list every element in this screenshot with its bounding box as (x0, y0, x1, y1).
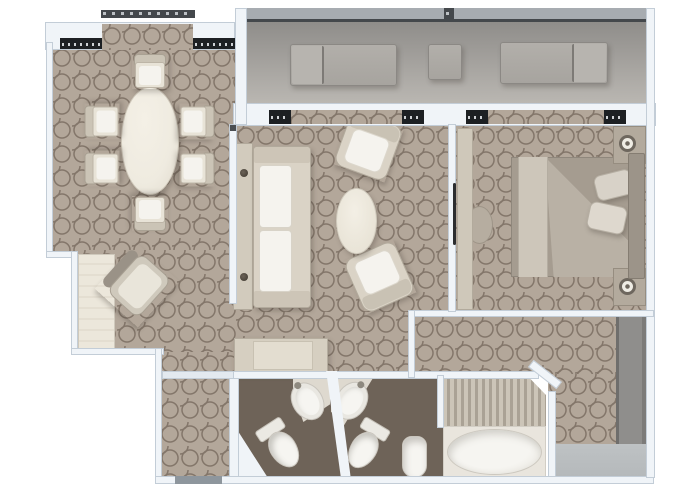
nook-bottom-wall (71, 348, 164, 355)
closet-floor-top (415, 317, 618, 374)
dining-living-divider-wall (229, 124, 237, 304)
chair-cushion (184, 158, 203, 180)
chair-cushion (184, 111, 203, 133)
chair-cushion (139, 66, 161, 85)
console-knob (240, 273, 248, 281)
sofa-cushion (259, 165, 292, 228)
wardrobe (616, 314, 646, 444)
bay-window-left (60, 38, 102, 49)
table-lamp (619, 278, 636, 295)
sun-lounger-right (500, 42, 608, 84)
bathtub (447, 429, 542, 475)
bed-headboard (628, 153, 645, 279)
dining-left-wall (46, 42, 53, 258)
hall-door-threshold (162, 371, 234, 379)
console-knob (240, 169, 248, 177)
bottom-outer-wall (155, 476, 654, 484)
balcony-side-table (428, 44, 462, 80)
dining-chair-bottom (132, 196, 168, 231)
dining-table (121, 87, 179, 195)
bay-balcony-partition-wall (235, 8, 247, 125)
hall-left-wall (155, 348, 162, 480)
credenza (234, 338, 328, 373)
bedroom-door-handle (453, 183, 456, 245)
chair-cushion (139, 200, 161, 219)
bidet (402, 436, 427, 478)
floor-plan (0, 0, 680, 486)
bay-carpet-overlay (102, 24, 193, 50)
coffee-table (336, 188, 377, 254)
bedroom-dresser (457, 128, 473, 310)
bed-runner (518, 157, 548, 277)
door-track-window (269, 110, 291, 124)
bathroom-top-wall (229, 371, 539, 379)
dining-chair-top (132, 54, 168, 89)
dining-chair-left-1 (85, 104, 120, 140)
sun-lounger-left (290, 44, 397, 86)
bedroom-bottom-wall (408, 310, 654, 317)
sofa (253, 146, 311, 308)
table-lamp (619, 135, 636, 152)
closet-left-wall (408, 310, 415, 378)
door-track-window (466, 110, 488, 124)
lounger-pillow (572, 44, 606, 82)
sofa-cushion (259, 230, 292, 292)
chair-cushion (97, 158, 116, 180)
tubroom-right-wall (548, 391, 556, 480)
railing-divider-post (444, 8, 454, 22)
dining-chair-left-2 (85, 151, 120, 187)
balcony-window-wall (233, 103, 656, 126)
desk (78, 254, 115, 352)
sliding-door-gap-living (269, 110, 424, 124)
wall-end-cap (230, 125, 236, 131)
credenza-top-panel (253, 341, 313, 370)
sofa-armrest-bottom (254, 291, 310, 307)
sofa-armrest-top (254, 147, 310, 163)
teak-shower-floor (443, 378, 546, 428)
shower-partition-wall (437, 375, 444, 428)
bay-window-right (193, 38, 235, 49)
closet-floor-mat (553, 444, 646, 476)
hall-bath-wall (229, 371, 239, 480)
nook-left-wall (71, 251, 78, 355)
entry-hall-floor (160, 374, 234, 478)
right-outer-wall (646, 8, 655, 478)
bay-railing (101, 10, 195, 18)
lounger-pillow (292, 46, 324, 84)
dining-chair-right-2 (180, 151, 215, 187)
sliding-door-gap-bedroom (466, 110, 626, 124)
door-track-window (604, 110, 626, 124)
chair-cushion (97, 111, 116, 133)
dining-chair-right-1 (180, 104, 215, 140)
door-track-window (402, 110, 424, 124)
entrance-door-threshold (175, 476, 222, 484)
